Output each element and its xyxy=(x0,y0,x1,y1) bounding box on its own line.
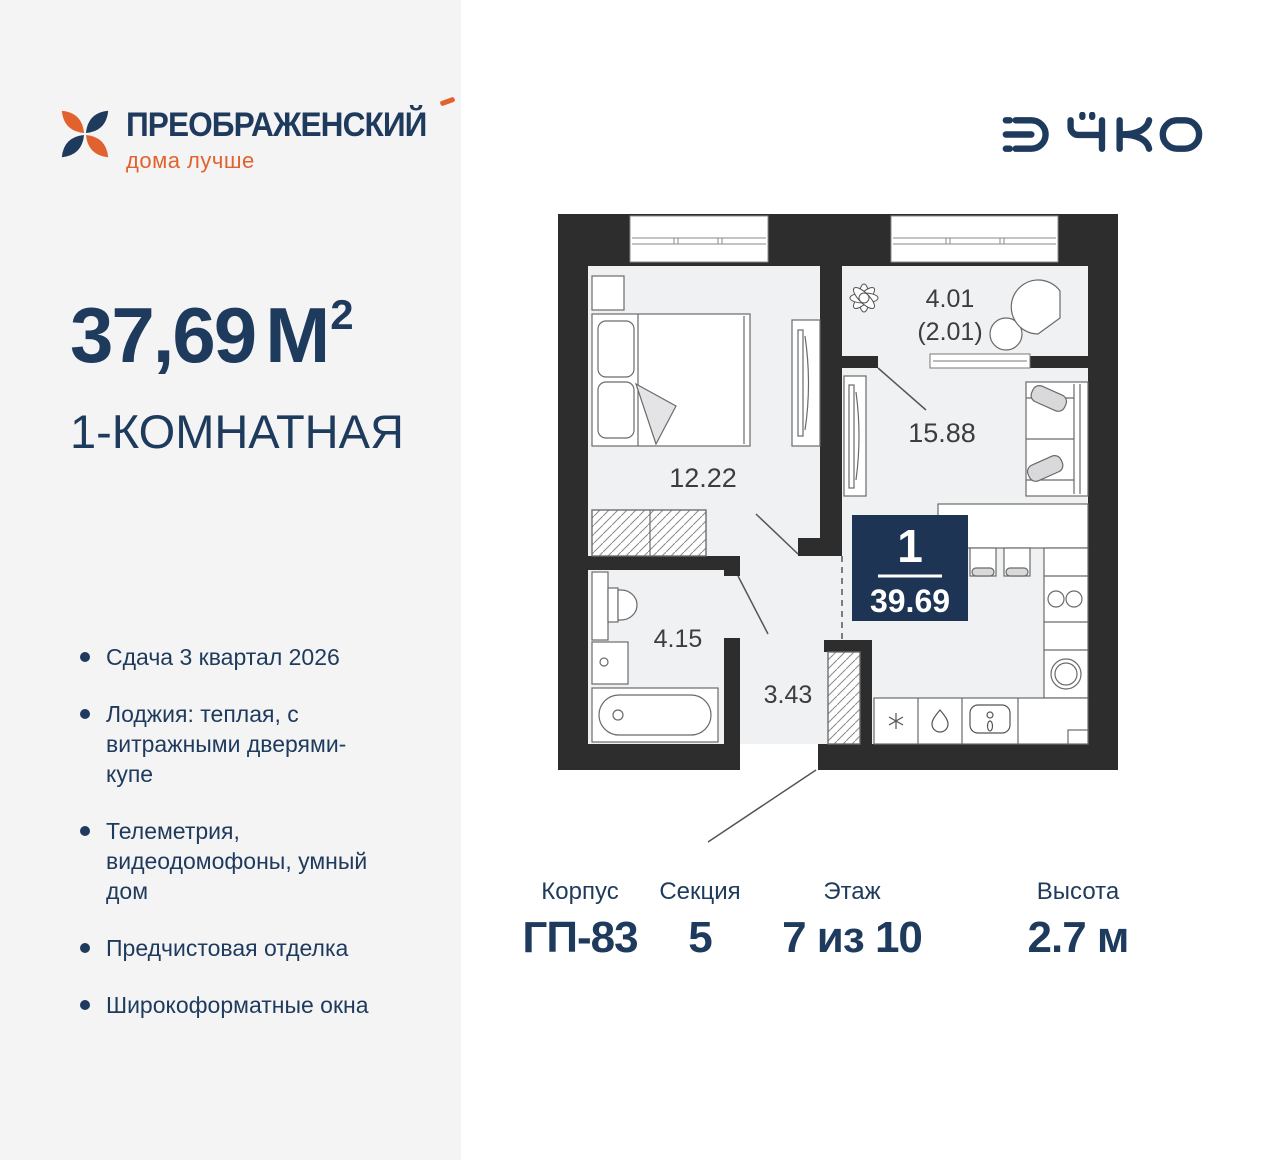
bullet-icon xyxy=(80,826,90,836)
apartment-area: 37,69М2 xyxy=(70,290,354,381)
area-value: 37,69 xyxy=(70,291,255,379)
window-bedroom xyxy=(630,216,768,262)
apartment-badge: 1 39.69 xyxy=(852,515,968,621)
bath-counter xyxy=(592,572,608,640)
spec-value: ГП-83 xyxy=(522,913,637,963)
spec-korpus: Корпус ГП-83 xyxy=(522,878,637,963)
feature-list: Сдача 3 квартал 2026 Лоджия: теплая, с в… xyxy=(78,642,370,1047)
bullet-icon xyxy=(80,652,90,662)
room-label-living: 15.88 xyxy=(908,418,976,448)
bullet-icon xyxy=(80,943,90,953)
bullet-icon xyxy=(80,709,90,719)
living-closet xyxy=(844,376,866,496)
spec-label: Секция xyxy=(659,878,740,906)
burner-icon xyxy=(1066,591,1082,607)
bedroom-wardrobe xyxy=(592,510,706,556)
room-label-hall: 3.43 xyxy=(764,681,813,709)
kitchen-column xyxy=(1044,548,1088,698)
feature-item: Широкоформатные окна xyxy=(78,990,370,1020)
spec-etazh: Этаж 7 из 10 xyxy=(782,878,922,963)
bedroom-closet xyxy=(792,320,820,446)
room-label-bathroom: 4.15 xyxy=(654,625,703,653)
feature-item: Предчистовая отделка xyxy=(78,933,370,963)
bathtub xyxy=(592,688,718,742)
developer-logo-enko: ЭНКО xyxy=(998,112,1204,160)
spec-vysota: Высота 2.7 м xyxy=(1028,878,1129,963)
brand-flower-icon xyxy=(56,104,114,164)
badge-rooms-count: 1 xyxy=(897,520,923,572)
brand-name: ПРЕОБРАЖЕНСКИЙ xyxy=(126,106,426,145)
feature-item: Лоджия: теплая, с витражными дверями-куп… xyxy=(78,699,370,789)
feature-item: Телеметрия, видеодомофоны, умный дом xyxy=(78,816,370,906)
kitchen-cabinets xyxy=(874,698,1088,744)
room-label-loggia-reduced: (2.01) xyxy=(917,318,982,346)
loggia-glass-door xyxy=(930,354,1030,368)
washing-machine xyxy=(592,642,628,684)
entrance-opening xyxy=(740,744,818,770)
brand-logo: ПРЕОБРАЖЕНСКИЙ дома лучше xyxy=(56,104,449,174)
entrance-door-swing xyxy=(708,770,816,842)
bed xyxy=(592,314,750,446)
spec-value: 5 xyxy=(659,913,740,963)
hall-closet xyxy=(828,652,860,744)
window-loggia xyxy=(891,216,1058,262)
room-label-bedroom: 12.22 xyxy=(669,463,737,493)
spec-label: Корпус xyxy=(522,878,637,906)
burner-icon xyxy=(1048,591,1064,607)
bullet-icon xyxy=(80,1000,90,1010)
spec-label: Высота xyxy=(1028,878,1129,906)
spec-sektsiya: Секция 5 xyxy=(659,878,740,963)
apartment-type: 1-КОМНАТНАЯ xyxy=(70,404,404,459)
nightstand xyxy=(592,276,624,310)
kitchen-sink-icon xyxy=(970,705,1010,733)
spec-label: Этаж xyxy=(782,878,922,906)
area-sup: 2 xyxy=(330,291,353,338)
enko-wordmark-icon xyxy=(998,112,1204,157)
feature-item: Сдача 3 квартал 2026 xyxy=(78,642,370,672)
brand-tagline: дома лучше xyxy=(126,148,449,174)
area-unit: М xyxy=(265,291,330,379)
floor-plan: 12.22 15.88 4.15 3.43 4.01 (2.01) 1 39.6… xyxy=(558,210,1118,850)
badge-total-area: 39.69 xyxy=(870,583,950,619)
spec-value: 7 из 10 xyxy=(782,913,922,963)
spec-value: 2.7 м xyxy=(1028,913,1129,963)
sofa xyxy=(1025,382,1088,496)
plant-icon xyxy=(850,284,878,312)
room-label-loggia: 4.01 xyxy=(926,285,975,313)
